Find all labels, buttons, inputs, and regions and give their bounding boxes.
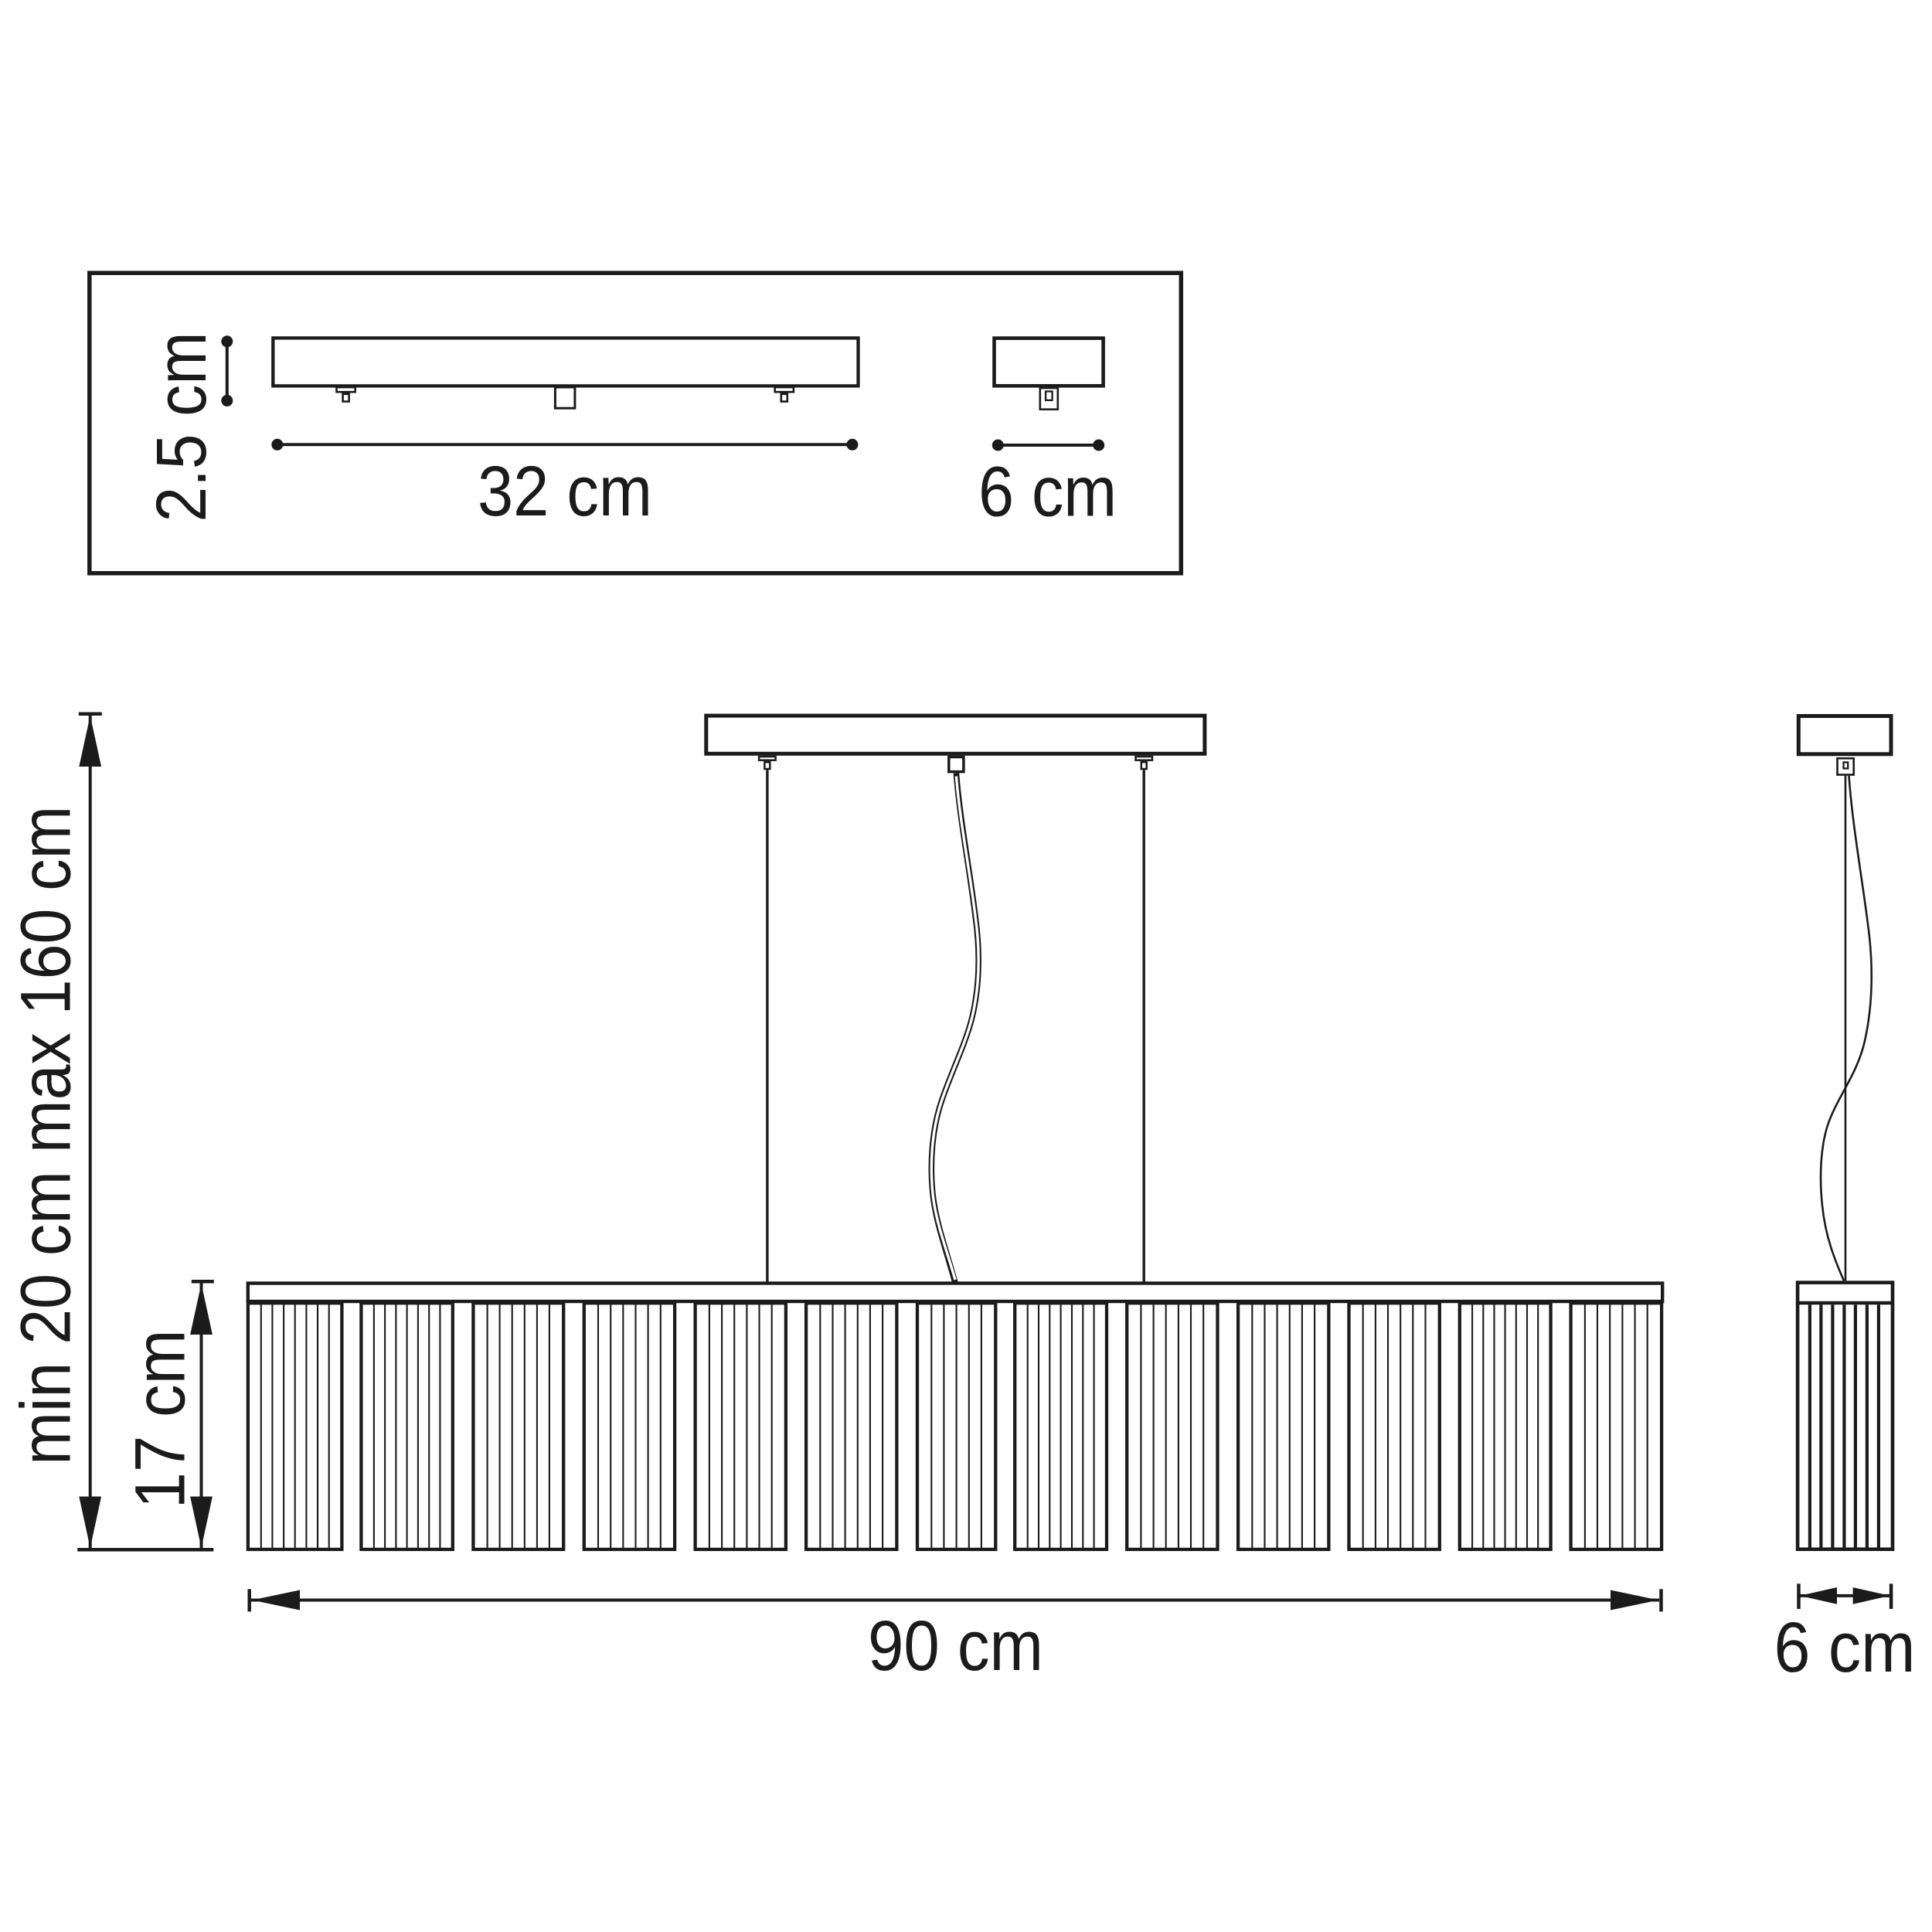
svg-text:6 cm: 6 cm [978,453,1117,532]
svg-text:90 cm: 90 cm [868,1607,1043,1685]
svg-text:min 20 cm max 160 cm: min 20 cm max 160 cm [6,806,85,1465]
svg-text:6 cm: 6 cm [1774,1608,1916,1687]
svg-text:2.5 cm: 2.5 cm [142,332,221,522]
svg-text:32 cm: 32 cm [478,452,652,531]
svg-text:17 cm: 17 cm [121,1329,200,1509]
